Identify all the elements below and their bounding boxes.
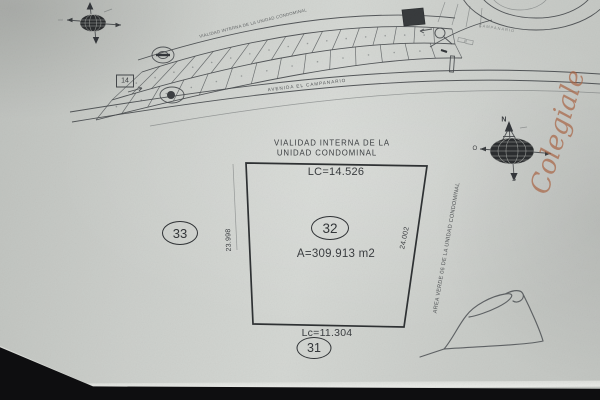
left-side-dimension: 23.998	[225, 228, 233, 251]
compass-west-label: O	[473, 146, 478, 152]
neighbor-lot-31: 31	[307, 341, 321, 355]
photo-of-survey-plan: VIALIDAD INTERNA DE LA UNIDAD CONDOMINAL…	[0, 0, 600, 400]
paper-sheet: VIALIDAD INTERNA DE LA UNIDAD CONDOMINAL…	[0, 0, 600, 400]
lot-number-circle: 32	[311, 216, 349, 240]
roundabout	[430, 0, 600, 47]
neighbor-lot-33-circle: 33	[162, 221, 198, 245]
lot-32-polygon	[233, 163, 427, 327]
street-heading-line2: UNIDAD CONDOMINAL	[277, 148, 377, 157]
highlighted-lot-32-on-map	[402, 8, 425, 26]
street-heading-line1: VIALIDAD INTERNA DE LA	[274, 139, 390, 148]
cul-de-sac-bulbs	[128, 47, 184, 103]
subdivision-map	[70, 0, 600, 126]
lot-area: A=309.913 m2	[297, 248, 375, 260]
neighbor-lot-33: 33	[173, 226, 187, 241]
compass-north-label: N	[501, 117, 506, 124]
compass-south-label: S	[512, 177, 516, 183]
neighbor-lot-31-circle: 31	[297, 337, 332, 359]
compass-rose-mini	[58, 2, 121, 44]
front-arc-dimension: LC=14.526	[308, 166, 364, 178]
block-number: 14	[121, 78, 129, 85]
avenue-line-median	[150, 90, 600, 126]
block-number-box: 14	[116, 75, 134, 88]
map-symbols	[420, 28, 473, 72]
lot-number: 32	[322, 221, 337, 236]
